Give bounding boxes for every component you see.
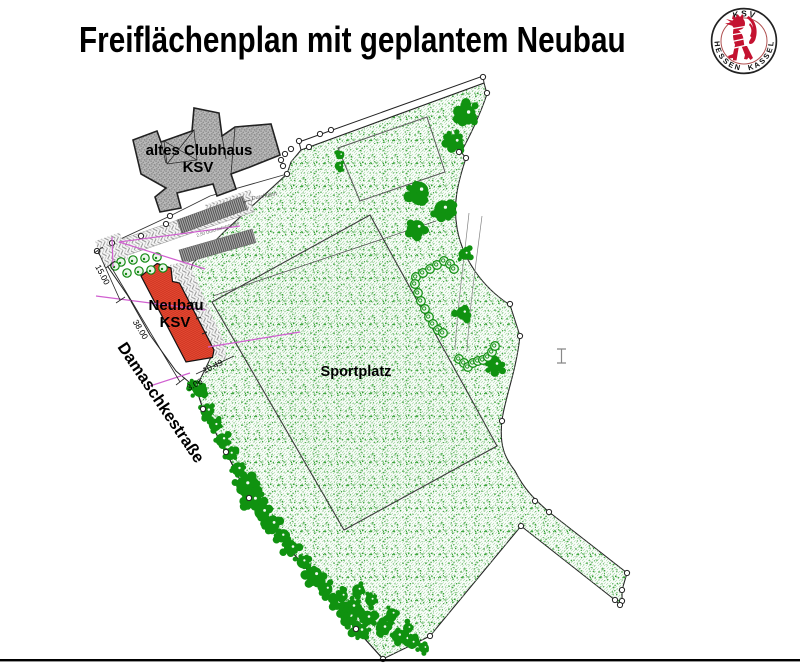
svg-text:altes Clubhaus: altes Clubhaus (146, 142, 253, 159)
svg-text:Neubau: Neubau (148, 297, 203, 314)
svg-text:KSV: KSV (160, 314, 191, 331)
svg-text:Freiflächenplan mit geplantem: Freiflächenplan mit geplantem Neubau (79, 19, 626, 59)
svg-text:Sportplatz: Sportplatz (321, 364, 392, 380)
svg-text:KSV: KSV (183, 159, 214, 176)
